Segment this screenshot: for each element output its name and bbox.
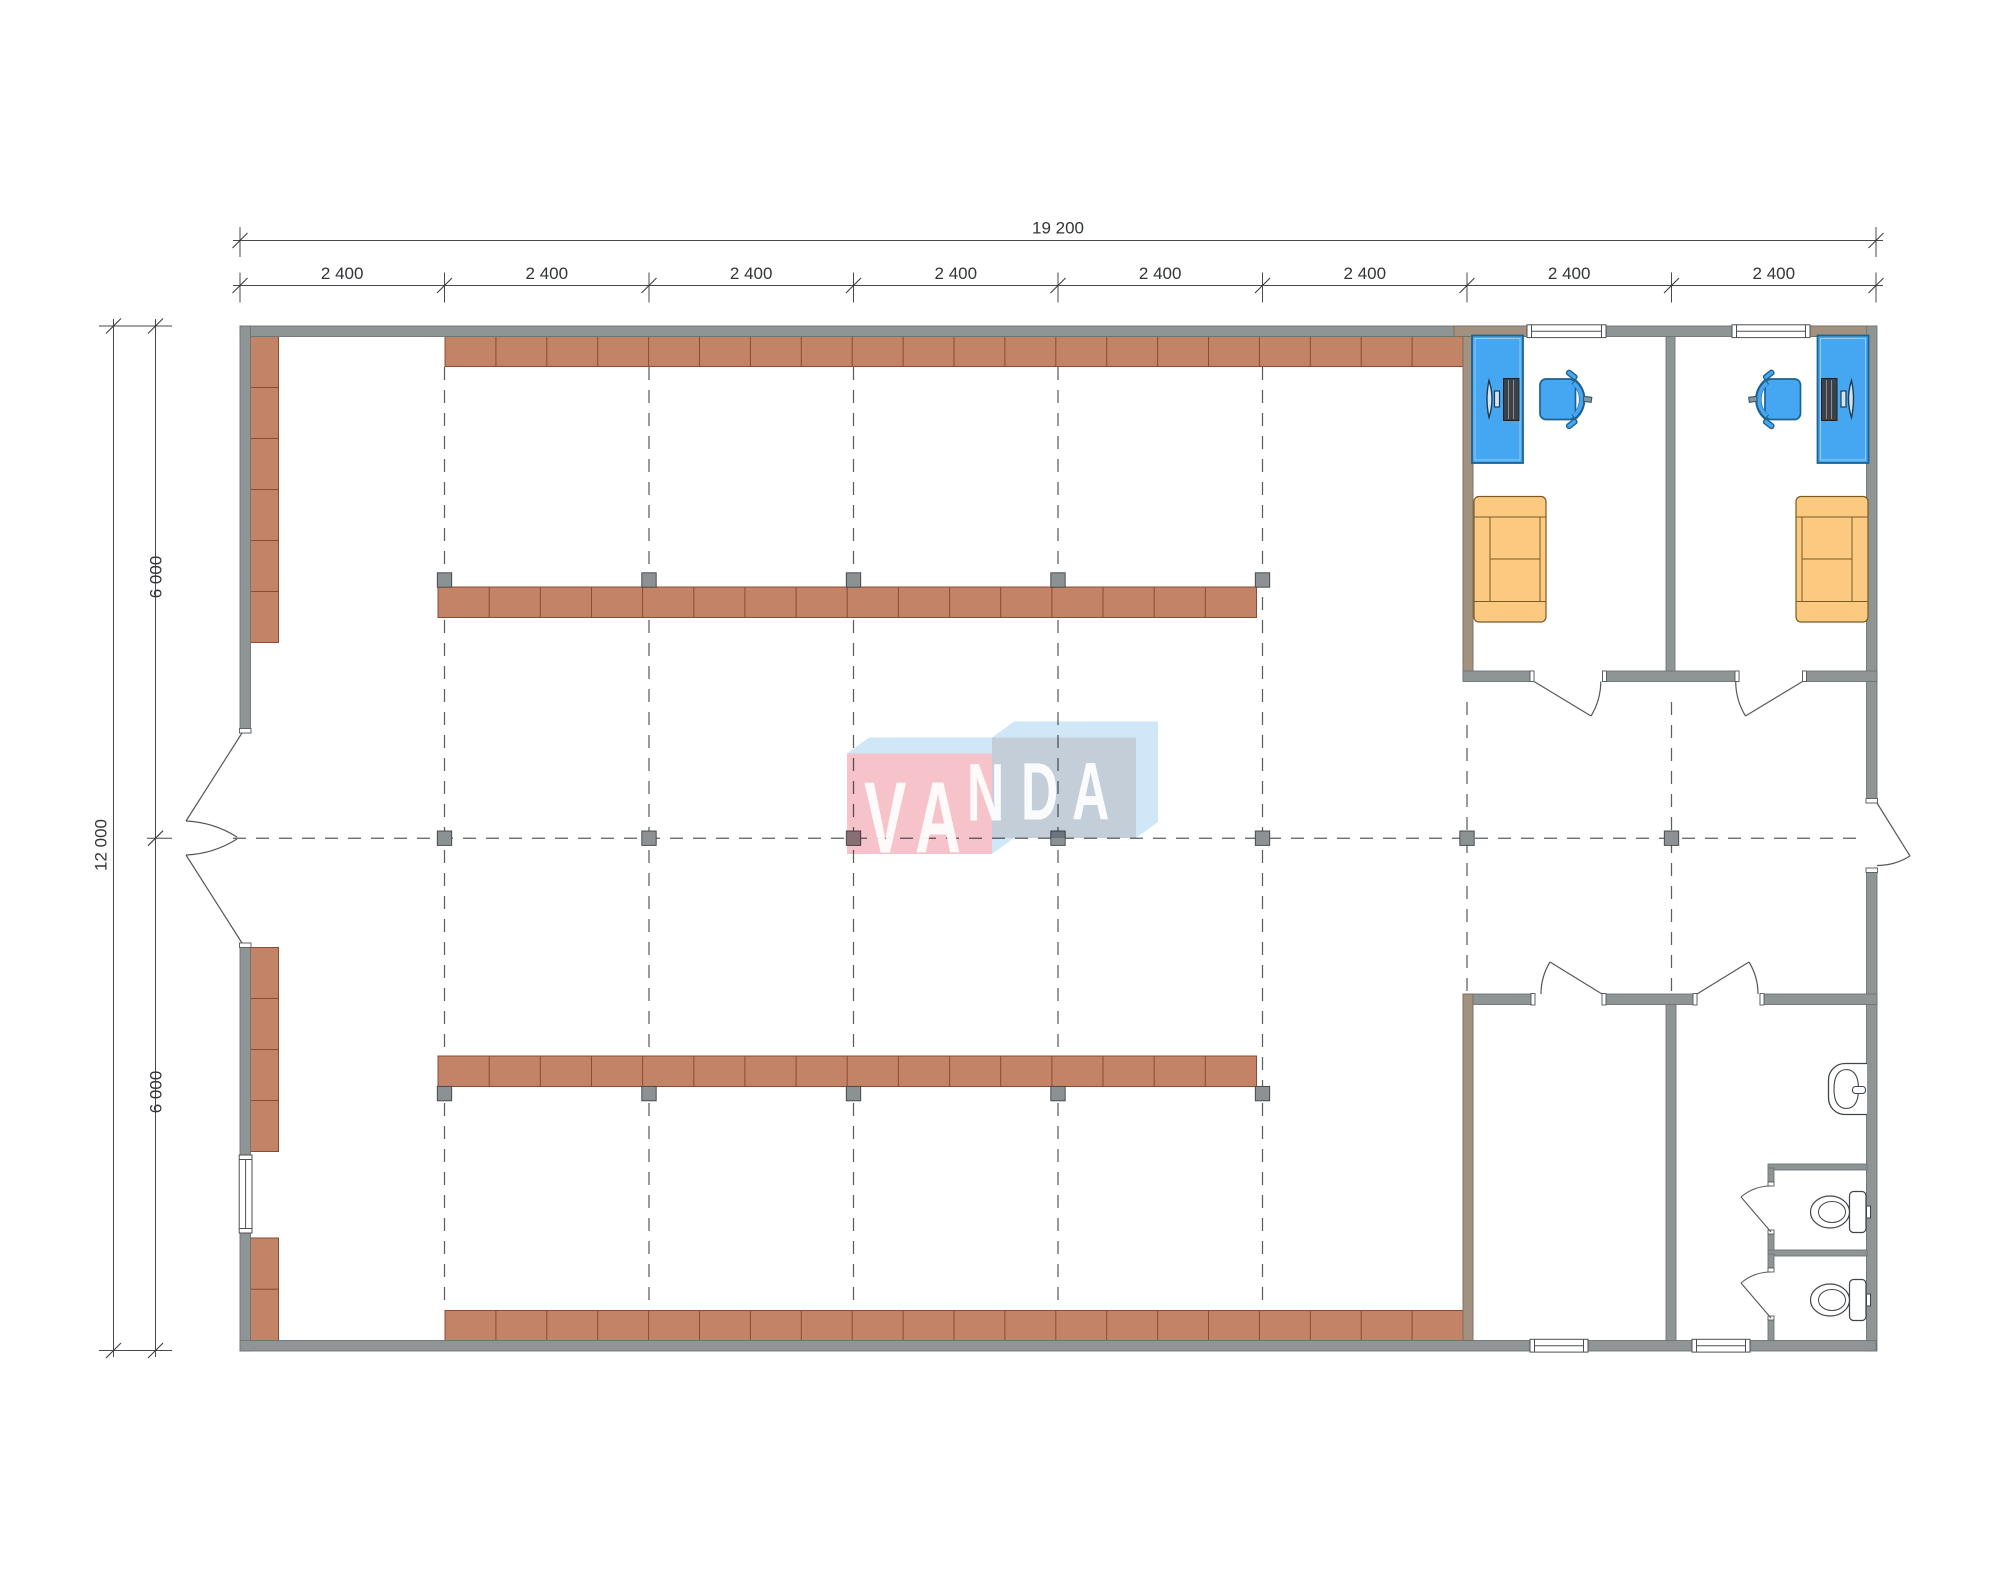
svg-text:V: V [864,762,906,874]
svg-text:2 400: 2 400 [1344,264,1387,283]
svg-text:12 000: 12 000 [92,819,111,871]
svg-text:A: A [915,762,961,874]
svg-text:D: D [1021,745,1058,837]
svg-text:19 200: 19 200 [1032,219,1084,238]
svg-text:2 400: 2 400 [1548,264,1591,283]
svg-text:2 400: 2 400 [730,264,773,283]
svg-text:2 400: 2 400 [321,264,364,283]
svg-text:2 400: 2 400 [526,264,569,283]
svg-text:2 400: 2 400 [935,264,978,283]
svg-text:2 400: 2 400 [1753,264,1796,283]
svg-text:N: N [967,746,1004,838]
svg-text:6 000: 6 000 [147,1071,166,1114]
svg-text:6 000: 6 000 [147,556,166,599]
svg-text:2 400: 2 400 [1139,264,1182,283]
svg-text:A: A [1072,745,1109,837]
